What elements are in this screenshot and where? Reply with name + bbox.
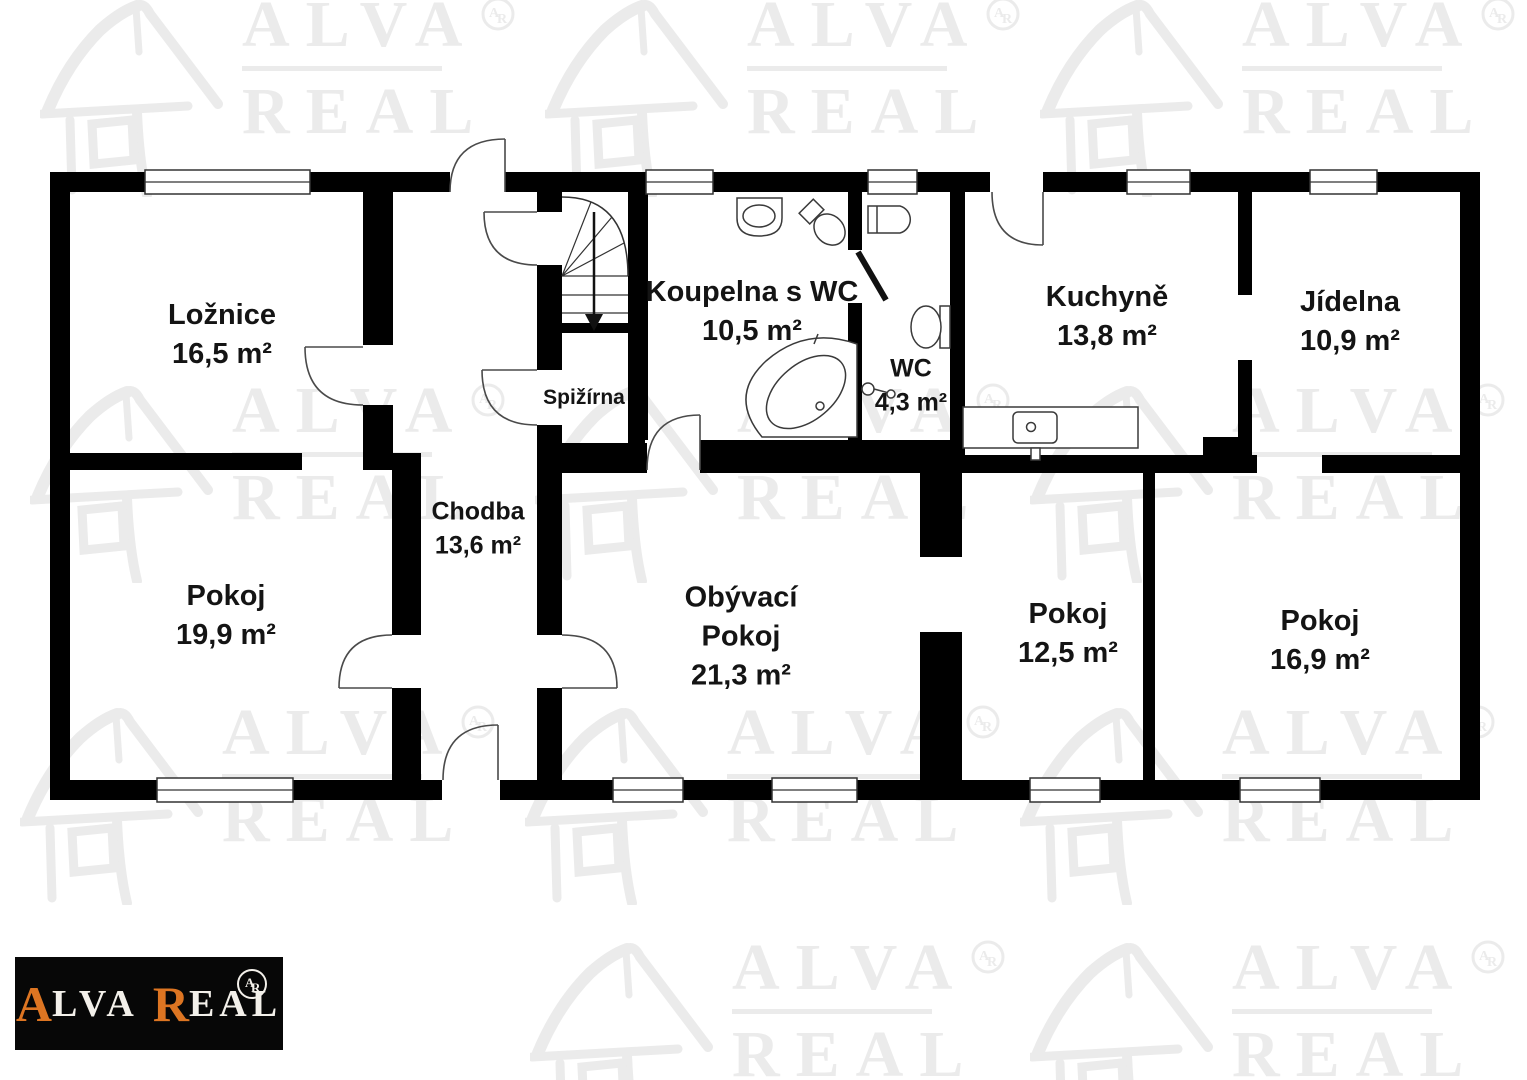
room-label: WC 4,3 m² bbox=[875, 352, 947, 420]
room-label: Obývací Pokoj 21,3 m² bbox=[685, 578, 798, 695]
logo-ar-monogram-icon: A R bbox=[235, 967, 269, 1001]
logo-word1-initial: A bbox=[16, 975, 52, 1033]
room-label: Koupelna s WC 10,5 m² bbox=[646, 273, 859, 351]
logo-word1-rest: LVA bbox=[52, 982, 139, 1026]
room-label: Pokoj 12,5 m² bbox=[1018, 595, 1118, 673]
alva-real-logo: ALVAREAL A R bbox=[15, 957, 283, 1050]
room-label: Chodba 13,6 m² bbox=[431, 495, 524, 563]
room-label: Pokoj 16,9 m² bbox=[1270, 602, 1370, 680]
room-label: Pokoj 19,9 m² bbox=[176, 577, 276, 655]
svg-text:R: R bbox=[251, 980, 261, 995]
room-label: Spižírna bbox=[543, 384, 625, 412]
floorplan-page: ALVAARREALALVAARREALALVAARREALALVAARREAL… bbox=[0, 0, 1527, 1080]
logo-word2-initial: R bbox=[153, 975, 189, 1033]
room-label: Jídelna 10,9 m² bbox=[1300, 283, 1400, 361]
room-labels: Ložnice 16,5 m²Pokoj 19,9 m²Chodba 13,6 … bbox=[0, 0, 1527, 1080]
room-label: Kuchyně 13,8 m² bbox=[1046, 278, 1168, 356]
room-label: Ložnice 16,5 m² bbox=[168, 296, 276, 374]
